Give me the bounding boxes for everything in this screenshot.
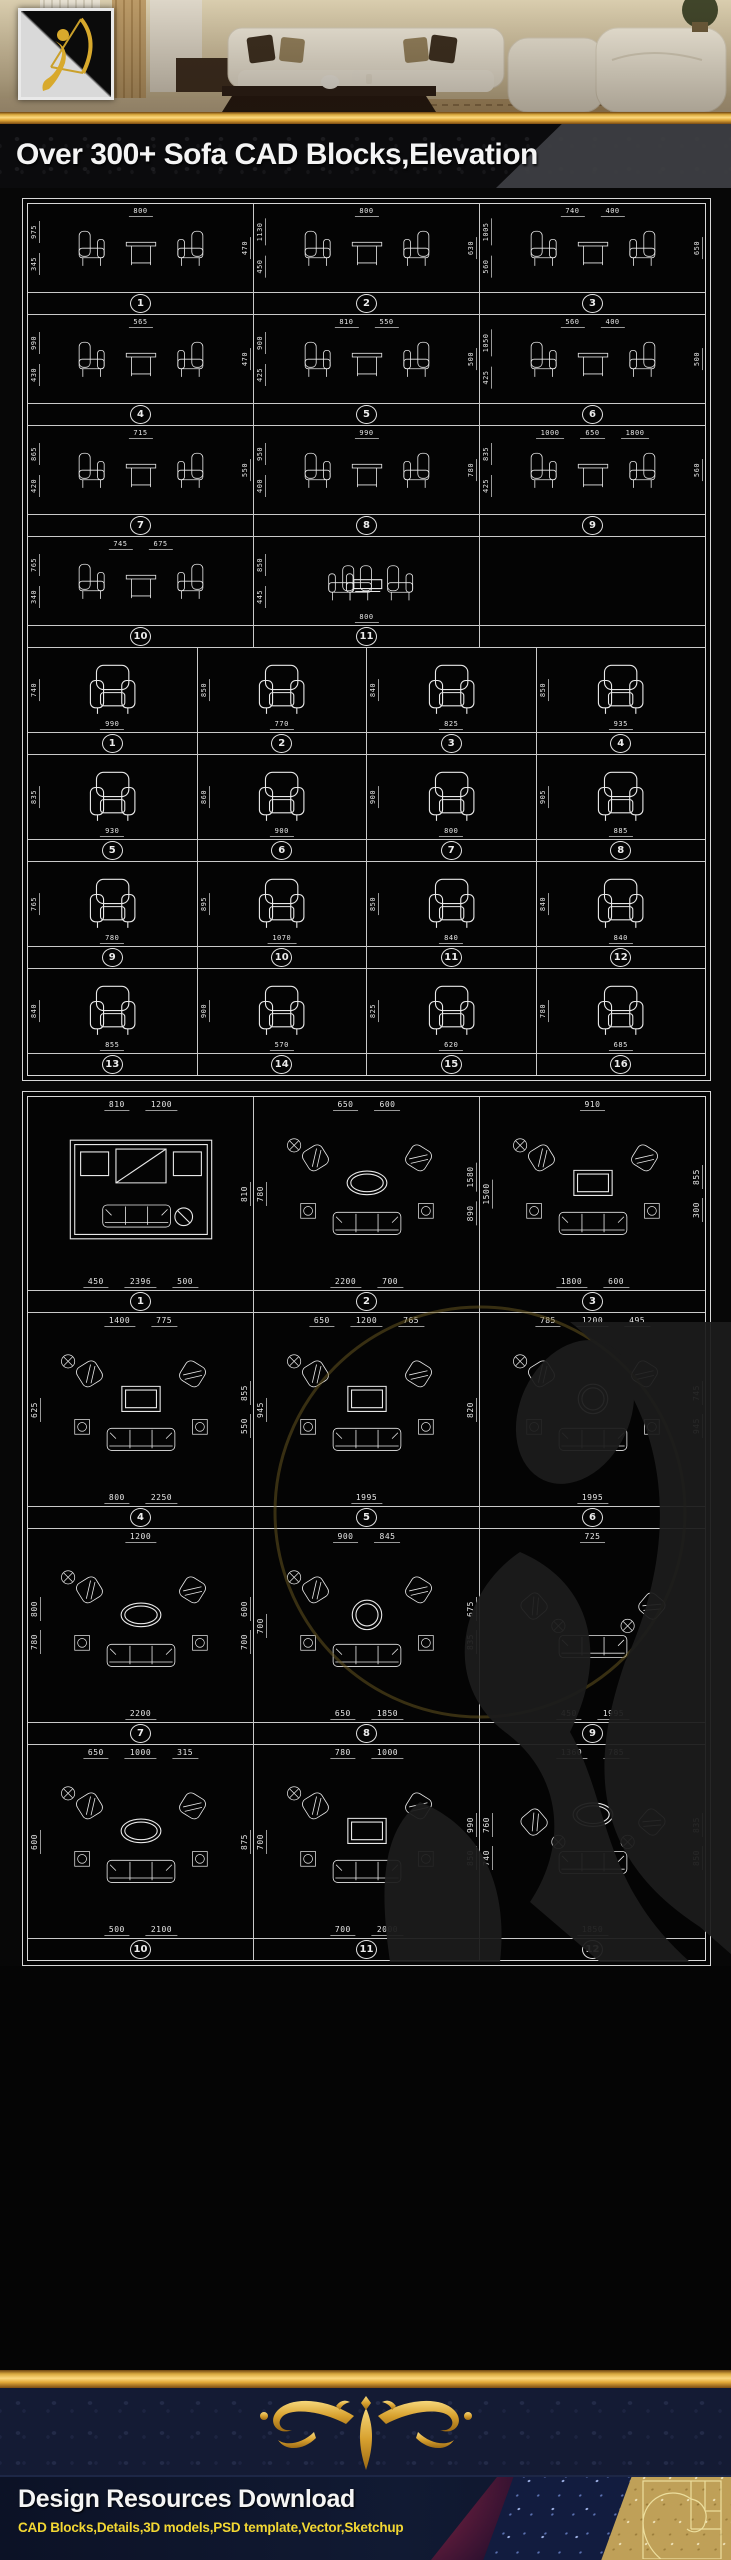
dim-label: 560 — [560, 318, 584, 328]
dim-label: 860 — [200, 786, 210, 808]
dim-dims-left: 900 — [369, 786, 379, 808]
elevation-cell-3: 825840 — [367, 648, 536, 732]
item-number: 11 — [356, 627, 377, 646]
dim-label: 650 — [330, 1709, 356, 1720]
dim-label: 400 — [601, 207, 625, 217]
item-number: 1 — [102, 734, 123, 753]
dim-label: 2200 — [330, 1277, 361, 1288]
dim-label: 550 — [241, 459, 251, 481]
dim-label: 625 — [30, 1398, 41, 1422]
dim-label: 740 — [30, 679, 40, 701]
item-number: 16 — [610, 1055, 631, 1074]
item-label-cell: 9 — [480, 1723, 705, 1744]
item-label-cell: 7 — [28, 1723, 253, 1744]
dim-dims-bottom: 1995 — [351, 1493, 382, 1504]
dim-dims-left: 840 — [369, 679, 379, 701]
dim-label: 600 — [375, 1100, 401, 1111]
dim-label: 1200 — [577, 1316, 608, 1327]
dim-dims-bottom: 4501995 — [556, 1709, 629, 1720]
footer-heading: Design Resources Download — [18, 2485, 403, 2514]
dim-label: 905 — [539, 786, 549, 808]
item-number: 2 — [271, 734, 292, 753]
dim-label: 990 — [466, 1813, 477, 1837]
item-label-cell: 12 — [537, 947, 706, 968]
dim-label: 780 — [256, 1182, 267, 1206]
item-label-cell — [480, 626, 705, 647]
item-number: 10 — [271, 948, 292, 967]
item-number: 7 — [130, 516, 151, 535]
dim-label: 500 — [172, 1277, 198, 1288]
dim-label: 315 — [172, 1748, 198, 1759]
dim-label: 740 — [560, 207, 584, 217]
dim-label: 855 — [692, 1165, 703, 1189]
dim-label: 650 — [693, 237, 703, 259]
dim-dims-left: 700 — [256, 1614, 267, 1638]
item-label-cell: 1 — [28, 733, 197, 754]
item-label-cell: 4 — [537, 733, 706, 754]
dim-dims-right: 470 — [241, 348, 251, 370]
dim-label: 560 — [693, 459, 703, 481]
item-number: 3 — [582, 1292, 603, 1311]
dim-dims-right: 675835 — [466, 1597, 477, 1655]
item-number: 8 — [610, 841, 631, 860]
dim-label: 560 — [482, 255, 492, 277]
item-label-cell: 3 — [480, 293, 705, 314]
dim-label: 780 — [330, 1748, 356, 1759]
dim-dims-bottom: 7002000 — [330, 1925, 403, 1936]
dim-label: 810 — [240, 1182, 251, 1206]
dim-label: 900 — [256, 332, 266, 354]
item-number: 6 — [582, 405, 603, 424]
dim-dims-right: 875 — [240, 1830, 251, 1854]
dim-label: 770 — [270, 720, 294, 730]
item-label-cell: 2 — [198, 733, 367, 754]
item-number: 3 — [582, 294, 603, 313]
dim-dims-right: 810 — [240, 1182, 251, 1206]
dim-label: 945 — [692, 1415, 703, 1439]
item-label-cell: 7 — [28, 515, 253, 536]
dim-label: 470 — [241, 237, 251, 259]
item-number: 15 — [441, 1055, 462, 1074]
dim-label: 1130 — [256, 218, 266, 245]
dim-label: 810 — [334, 318, 358, 328]
item-number: 10 — [130, 627, 151, 646]
item-label-cell: 11 — [254, 626, 479, 647]
item-number: 4 — [130, 1508, 151, 1527]
dim-label: 875 — [240, 1830, 251, 1854]
elevation-cell-9: 10006501800835425560 — [480, 426, 705, 514]
item-number: 12 — [610, 948, 631, 967]
dim-dims-left: 835425 — [482, 443, 492, 497]
dim-dims-bottom: 685 — [609, 1041, 633, 1051]
dim-label: 500 — [693, 348, 703, 370]
plan-cell-6: 78512004951995745945 — [480, 1313, 705, 1506]
dim-label: 780 — [539, 1000, 549, 1022]
item-number: 1 — [130, 1292, 151, 1311]
dim-label: 1850 — [372, 1709, 403, 1720]
dim-label: 800 — [128, 207, 152, 217]
dim-dims-top: 900845 — [333, 1532, 401, 1543]
dim-label: 930 — [100, 827, 124, 837]
dim-label: 895 — [200, 893, 210, 915]
dim-label: 500 — [467, 348, 477, 370]
dim-label: 675 — [466, 1597, 477, 1621]
dim-dims-top: 740400 — [560, 207, 624, 217]
elevation-cell-11: 800850445 — [254, 537, 479, 625]
dim-dims-left: 990430 — [30, 332, 40, 386]
dim-dims-bottom: 990 — [100, 720, 124, 730]
elevation-cell-12: 840840 — [537, 862, 706, 946]
dim-label: 675 — [149, 540, 173, 550]
dim-dims-bottom: 800 — [439, 827, 463, 837]
plan-cell-10: 65010003155002100600875 — [28, 1745, 253, 1938]
item-label-cell: 1 — [28, 293, 253, 314]
dim-label: 700 — [330, 1925, 356, 1936]
elevation-cell-8: 990950400780 — [254, 426, 479, 514]
title-band: Over 300+ Sofa CAD Blocks,Elevation — [0, 124, 731, 188]
item-number: 2 — [356, 294, 377, 313]
footer: Design Resources Download CAD Blocks,Det… — [0, 2475, 731, 2560]
dim-label: 745 — [108, 540, 132, 550]
dim-dims-right: 630 — [467, 237, 477, 259]
dim-dims-right: 650 — [693, 237, 703, 259]
item-number: 10 — [130, 1940, 151, 1959]
dim-label: 800 — [30, 1597, 41, 1621]
dim-dims-right: 470 — [241, 237, 251, 259]
plan-layouts-grid: 81012004502396500810 6506002200700780158… — [28, 1097, 705, 1960]
dim-dims-left: 850 — [369, 893, 379, 915]
dim-label: 1500 — [482, 1179, 493, 1208]
item-label-cell: 6 — [198, 840, 367, 861]
elevation-cell-5: 930835 — [28, 755, 197, 839]
dim-label: 850 — [369, 893, 379, 915]
dim-dims-left: 905 — [539, 786, 549, 808]
dim-dims-right: 560 — [693, 459, 703, 481]
item-label-cell: 10 — [28, 626, 253, 647]
plan-cell-8: 9008456501850700675835 — [254, 1529, 479, 1722]
dim-label: 765 — [30, 554, 40, 576]
dim-label: 850 — [466, 1847, 477, 1871]
dim-label: 1005 — [482, 218, 492, 245]
dim-label: 550 — [240, 1415, 251, 1439]
item-label-cell: 4 — [28, 1507, 253, 1528]
dim-label: 425 — [482, 475, 492, 497]
item-label-cell: 7 — [367, 840, 536, 861]
plan-cell-12: 13607851850760740835850 — [480, 1745, 705, 1938]
dim-dims-left: 1005560 — [482, 218, 492, 277]
dim-label: 840 — [609, 934, 633, 944]
dim-dims-left: 700 — [256, 1830, 267, 1854]
dim-label: 1200 — [146, 1100, 177, 1111]
dim-label: 725 — [580, 1532, 606, 1543]
dim-label: 1400 — [104, 1316, 135, 1327]
item-number: 5 — [102, 841, 123, 860]
dim-dims-top: 6501200765 — [309, 1316, 424, 1327]
dim-label: 1995 — [598, 1709, 629, 1720]
dim-label: 840 — [30, 1000, 40, 1022]
plan-cell-5: 65012007651995945820 — [254, 1313, 479, 1506]
dim-label: 900 — [270, 827, 294, 837]
item-number: 14 — [271, 1055, 292, 1074]
cad-sheet-plans: 81012004502396500810 6506002200700780158… — [22, 1091, 711, 1966]
dim-dims-left: 975345 — [30, 221, 40, 275]
item-number: 9 — [102, 948, 123, 967]
dim-label: 685 — [609, 1041, 633, 1051]
item-number: 12 — [582, 1940, 603, 1959]
item-number: 7 — [441, 841, 462, 860]
item-label-cell: 3 — [367, 733, 536, 754]
dim-label: 765 — [30, 893, 40, 915]
dim-label: 1000 — [125, 1748, 156, 1759]
dim-dims-bottom: 770 — [270, 720, 294, 730]
dim-label: 1800 — [621, 429, 650, 439]
dim-dims-top: 715 — [128, 429, 152, 439]
dim-label: 780 — [100, 934, 124, 944]
footer-text: Design Resources Download CAD Blocks,Det… — [18, 2485, 403, 2535]
dim-label: 300 — [692, 1199, 703, 1223]
dim-label: 565 — [128, 318, 152, 328]
dim-label: 715 — [128, 429, 152, 439]
dim-dims-left: 900 — [200, 1000, 210, 1022]
dim-label: 400 — [256, 475, 266, 497]
item-number: 13 — [102, 1055, 123, 1074]
elevation-cell-10: 1070895 — [198, 862, 367, 946]
dim-label: 700 — [256, 1614, 267, 1638]
elevation-cell-8: 885905 — [537, 755, 706, 839]
dim-dims-right: 855300 — [692, 1165, 703, 1223]
item-number: 8 — [356, 516, 377, 535]
dim-dims-bottom: 780 — [100, 934, 124, 944]
dim-label: 570 — [270, 1041, 294, 1051]
dim-dims-bottom: 840 — [609, 934, 633, 944]
item-label-cell: 10 — [28, 1939, 253, 1960]
item-number: 4 — [610, 734, 631, 753]
dim-label: 450 — [83, 1277, 109, 1288]
dim-label: 1000 — [536, 429, 565, 439]
dim-label: 470 — [241, 348, 251, 370]
dim-dims-right: 855550 — [240, 1381, 251, 1439]
item-label-cell: 8 — [537, 840, 706, 861]
item-number: 8 — [356, 1724, 377, 1743]
dim-label: 1000 — [372, 1748, 403, 1759]
dim-dims-left: 765340 — [30, 554, 40, 608]
dim-dims-top: 1200 — [125, 1532, 156, 1543]
dim-label: 700 — [377, 1277, 403, 1288]
dim-label: 700 — [240, 1631, 251, 1655]
dim-dims-left: 1130450 — [256, 218, 266, 277]
item-label-cell: 8 — [254, 1723, 479, 1744]
item-number: 3 — [441, 734, 462, 753]
dim-dims-right: 820 — [466, 1398, 477, 1422]
dim-label: 855 — [240, 1381, 251, 1405]
cad-sheet-elevations: 800975345470 8001130450630 7404001005560… — [22, 198, 711, 1081]
dim-dims-top: 1360785 — [556, 1748, 629, 1759]
dim-label: 425 — [482, 366, 492, 388]
top-photo-banner — [0, 0, 731, 112]
dim-label: 825 — [439, 720, 463, 730]
dim-dims-left: 860 — [200, 786, 210, 808]
footer-artwork — [431, 2477, 731, 2560]
dim-label: 1050 — [482, 329, 492, 356]
plan-cell-7: 12002200800780600700 — [28, 1529, 253, 1722]
dim-dims-left: 945 — [256, 1398, 267, 1422]
elevation-cell-2: 8001130450630 — [254, 204, 479, 292]
item-label-cell: 6 — [480, 1507, 705, 1528]
item-label-cell: 12 — [480, 1939, 705, 1960]
dim-label: 620 — [439, 1041, 463, 1051]
elevation-singles-grid: 990740 770850 825840 9358501234 930835 9… — [28, 647, 705, 1075]
footer-subheading: CAD Blocks,Details,3D models,PSD templat… — [18, 2520, 403, 2535]
dim-label: 700 — [256, 1830, 267, 1854]
dim-dims-bottom: 5002100 — [104, 1925, 177, 1936]
dim-dims-left: 600 — [30, 1830, 41, 1854]
dim-label: 780 — [30, 1631, 41, 1655]
dim-label: 1200 — [351, 1316, 382, 1327]
dim-label: 745 — [692, 1381, 703, 1405]
dim-dims-left: 625 — [30, 1398, 41, 1422]
dim-dims-top: 8101200 — [104, 1100, 177, 1111]
plan-cell-4: 14007758002250625855550 — [28, 1313, 253, 1506]
dim-label: 835 — [692, 1813, 703, 1837]
plan-cell-3: 91018006001500855300 — [480, 1097, 705, 1290]
elevation-cell-15: 620825 — [367, 969, 536, 1053]
dim-dims-bottom: 1800600 — [556, 1277, 629, 1288]
dim-label: 785 — [603, 1748, 629, 1759]
item-label-cell: 3 — [480, 1291, 705, 1312]
dim-label: 835 — [30, 786, 40, 808]
elevation-cell — [480, 537, 705, 625]
item-number: 2 — [356, 1292, 377, 1311]
dim-label: 400 — [601, 318, 625, 328]
item-number: 7 — [130, 1724, 151, 1743]
item-label-cell: 14 — [198, 1054, 367, 1075]
dim-dims-left: 765 — [30, 893, 40, 915]
dim-dims-top: 745675 — [108, 540, 172, 550]
elevation-cell-3: 7404001005560650 — [480, 204, 705, 292]
dim-dims-left: 800780 — [30, 1597, 41, 1655]
dim-dims-right: 500 — [693, 348, 703, 370]
dim-label: 825 — [369, 1000, 379, 1022]
dim-dims-bottom: 1850 — [577, 1925, 608, 1936]
dim-dims-bottom: 2200700 — [330, 1277, 403, 1288]
elevation-cell-6: 5604001050425500 — [480, 315, 705, 403]
dim-dims-bottom: 8002250 — [104, 1493, 177, 1504]
dim-dims-left: 840 — [30, 1000, 40, 1022]
dim-label: 810 — [104, 1100, 130, 1111]
dim-dims-left: 950400 — [256, 443, 266, 497]
dim-label: 450 — [556, 1709, 582, 1720]
dim-label: 890 — [466, 1201, 477, 1225]
dim-label: 835 — [482, 443, 492, 465]
dim-dims-top: 7801000 — [330, 1748, 403, 1759]
dim-label: 855 — [100, 1041, 124, 1051]
dim-label: 650 — [333, 1100, 359, 1111]
dim-dims-right: 1580890 — [466, 1162, 477, 1225]
dim-label: 1070 — [267, 934, 296, 944]
dim-label: 835 — [466, 1631, 477, 1655]
elevation-cell-1: 990740 — [28, 648, 197, 732]
dim-label: 650 — [580, 429, 604, 439]
dim-dims-top: 800 — [354, 207, 378, 217]
dim-label: 1800 — [556, 1277, 587, 1288]
item-number: 9 — [582, 1724, 603, 1743]
dim-dims-left: 780 — [539, 1000, 549, 1022]
dim-label: 1200 — [125, 1532, 156, 1543]
dim-dims-bottom: 1995 — [577, 1493, 608, 1504]
plan-cell-11: 78010007002000700990850 — [254, 1745, 479, 1938]
dim-label: 630 — [467, 237, 477, 259]
dim-label: 2000 — [372, 1925, 403, 1936]
dim-dims-top: 910 — [580, 1100, 606, 1111]
dim-label: 800 — [104, 1493, 130, 1504]
dim-dims-top: 650600 — [333, 1100, 401, 1111]
item-label-cell: 2 — [254, 293, 479, 314]
item-label-cell: 13 — [28, 1054, 197, 1075]
dim-label: 650 — [309, 1316, 335, 1327]
dim-dims-bottom: 825 — [439, 720, 463, 730]
dim-dims-left: 850 — [539, 679, 549, 701]
item-label-cell: 10 — [198, 947, 367, 968]
dim-dims-left: 865420 — [30, 443, 40, 497]
dim-label: 600 — [240, 1597, 251, 1621]
item-label-cell: 8 — [254, 515, 479, 536]
dim-label: 550 — [375, 318, 399, 328]
elevation-cell-7: 715865420550 — [28, 426, 253, 514]
dim-dims-bottom: 935 — [609, 720, 633, 730]
item-label-cell: 9 — [28, 947, 197, 968]
item-label-cell: 9 — [480, 515, 705, 536]
elevation-cell-9: 780765 — [28, 862, 197, 946]
dim-label: 820 — [466, 1398, 477, 1422]
spacer — [0, 1966, 731, 2370]
product-image: Over 300+ Sofa CAD Blocks,Elevation 8009… — [0, 0, 731, 2560]
dim-label: 900 — [369, 786, 379, 808]
gold-divider-bottom — [0, 2370, 731, 2388]
dim-label: 935 — [609, 720, 633, 730]
dim-dims-top: 6501000315 — [83, 1748, 198, 1759]
dim-label: 1995 — [351, 1493, 382, 1504]
item-label-cell: 5 — [254, 1507, 479, 1528]
dim-dims-left: 900425 — [256, 332, 266, 386]
dim-label: 865 — [30, 443, 40, 465]
dim-label: 850 — [256, 554, 266, 576]
elevation-cell-4: 935850 — [537, 648, 706, 732]
dim-dims-top: 7851200495 — [535, 1316, 650, 1327]
dim-dims-left: 780 — [256, 1182, 267, 1206]
dim-label: 850 — [200, 679, 210, 701]
item-number: 11 — [441, 948, 462, 967]
item-label-cell: 1 — [28, 1291, 253, 1312]
elevation-cell-5: 810550900425500 — [254, 315, 479, 403]
dim-dims-right: 550 — [241, 459, 251, 481]
item-number: 6 — [582, 1508, 603, 1527]
elevation-cell-13: 855840 — [28, 969, 197, 1053]
dim-label: 495 — [624, 1316, 650, 1327]
dim-dims-top: 810550 — [334, 318, 398, 328]
dim-label: 910 — [580, 1100, 606, 1111]
elevation-cell-1: 800975345470 — [28, 204, 253, 292]
dim-dims-left: 1500 — [482, 1179, 493, 1208]
dim-dims-left: 825 — [369, 1000, 379, 1022]
plan-cell-1: 81012004502396500810 — [28, 1097, 253, 1290]
dim-dims-right: 745945 — [692, 1381, 703, 1439]
dim-label: 885 — [609, 827, 633, 837]
dim-dims-right: 600700 — [240, 1597, 251, 1655]
item-number: 6 — [271, 841, 292, 860]
dim-label: 990 — [354, 429, 378, 439]
item-label-cell: 11 — [254, 1939, 479, 1960]
archer-logo — [18, 8, 114, 100]
